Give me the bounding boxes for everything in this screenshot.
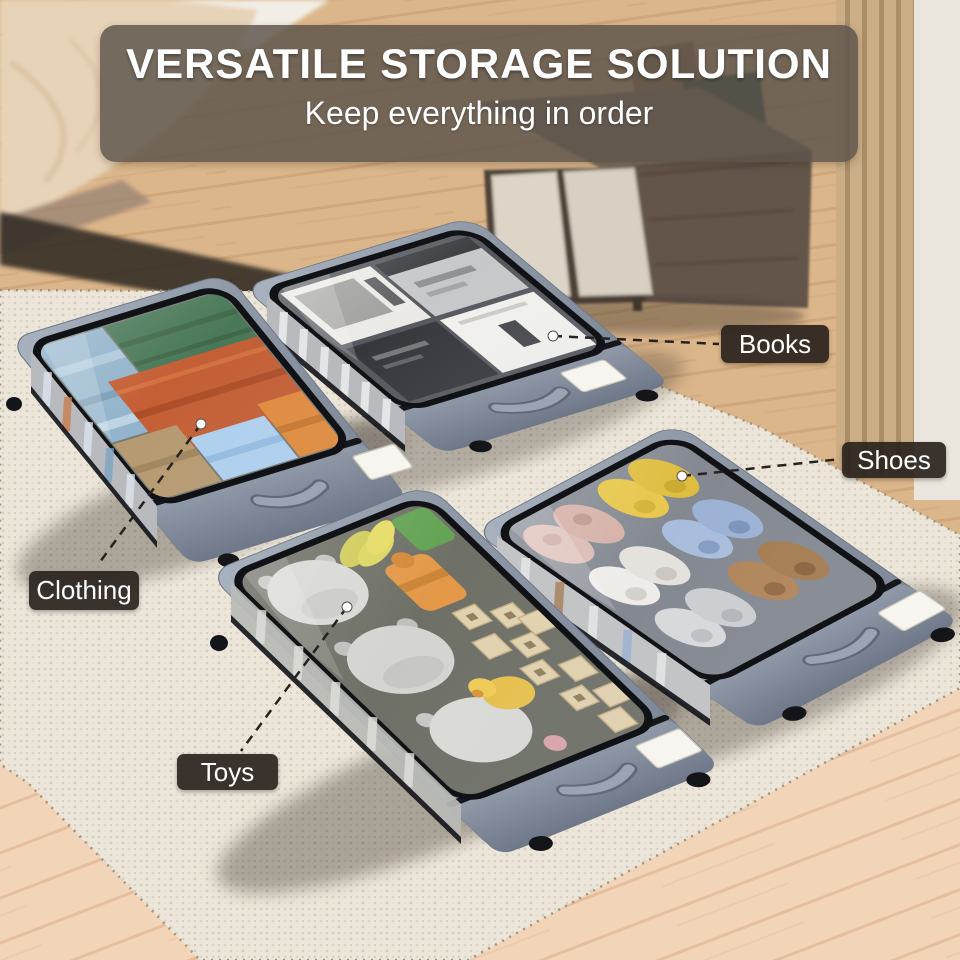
callout-dot-toys	[342, 602, 352, 612]
callout-books: Books	[721, 325, 829, 363]
callout-shoes: Shoes	[842, 442, 946, 478]
bin-wheel	[210, 635, 228, 651]
headline-banner: VERSATILE STORAGE SOLUTION Keep everythi…	[100, 25, 858, 162]
product-image: VERSATILE STORAGE SOLUTION Keep everythi…	[0, 0, 960, 960]
callout-dot-clothing	[196, 419, 206, 429]
callout-clothing: Clothing	[29, 571, 139, 610]
headline-subtitle: Keep everything in order	[100, 95, 858, 132]
callout-toys-label: Toys	[201, 757, 254, 788]
headline-title: VERSATILE STORAGE SOLUTION	[100, 40, 858, 88]
callout-dot-books	[548, 331, 558, 341]
callout-toys: Toys	[177, 754, 278, 790]
callout-shoes-label: Shoes	[857, 445, 931, 476]
wall	[914, 0, 960, 500]
bin-wheel	[6, 397, 22, 411]
callout-books-label: Books	[739, 329, 811, 360]
callout-dot-shoes	[677, 471, 687, 481]
callout-clothing-label: Clothing	[36, 575, 131, 606]
